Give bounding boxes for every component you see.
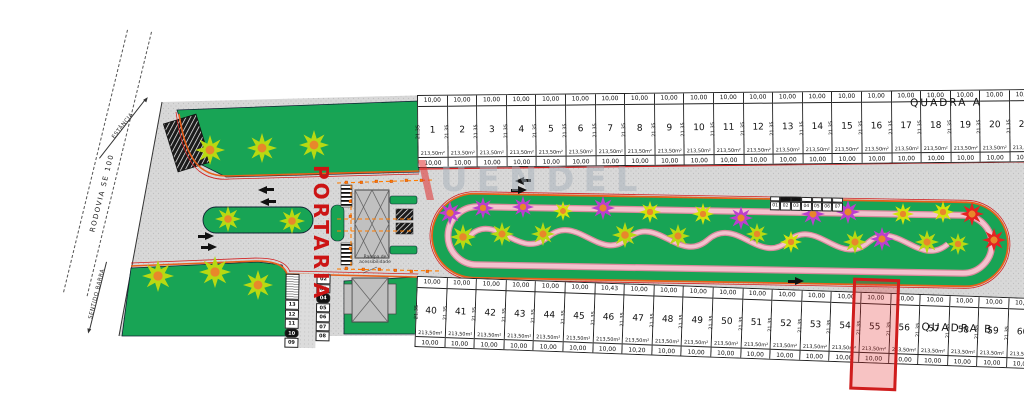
lot-cell-16: 10,001621,35213,50m²10,00	[862, 91, 892, 162]
lot-cell-14: 10,001421,35213,50m²10,00	[803, 92, 833, 163]
lot-cell-9: 10,00921,35213,50m²10,00	[655, 93, 685, 164]
lot-area: 213,50m²	[534, 335, 564, 341]
lot-front-dim: 10,00	[625, 285, 654, 293]
lot-number: 44	[535, 310, 564, 321]
lot-area: 213,50m²	[773, 148, 802, 154]
lot-cell-2: 10,00221,35213,50m²10,00	[448, 95, 478, 166]
lot-back-dim: 10,00	[419, 160, 448, 167]
speed-bump-2	[396, 223, 413, 234]
lot-cell-44: 10,004421,35213,50m²10,00	[534, 281, 566, 351]
lot-number: 11	[714, 122, 743, 132]
mini-strip-lot-13: 13	[285, 300, 299, 310]
lot-front-dim: 10,00	[684, 288, 713, 296]
lot-front-dim: 10,00	[980, 298, 1009, 306]
lot-area: 213,50m²	[623, 338, 653, 344]
lot-front-dim: 10,00	[418, 278, 447, 286]
lot-area: 213,50m²	[803, 147, 832, 153]
lot-front-dim: 10,00	[536, 282, 565, 290]
tree-icon	[553, 201, 573, 221]
lot-cell-8: 10,00821,35213,50m²10,00	[625, 94, 655, 165]
lot-number: 50	[712, 316, 741, 327]
lot-front-dim: 10,00	[566, 95, 595, 102]
lot-front-dim: 10,00	[448, 96, 477, 103]
lot-area: 213,50m²	[921, 146, 950, 152]
lot-cell-40: 10,004021,3521,35213,50m²10,00	[415, 277, 447, 347]
lot-area: 213,50m²	[596, 149, 625, 155]
lot-cell-52: 10,005221,35213,50m²10,00	[770, 290, 802, 360]
lot-cell-48: 10,004821,35213,50m²10,00	[652, 286, 684, 356]
lot-side-dim-left: 21,35	[415, 120, 421, 142]
lot-area: 213,50m²	[445, 331, 475, 337]
lot-number: 1	[418, 125, 447, 135]
lot-cell-3: 10,00321,35213,50m²10,00	[477, 95, 507, 166]
lot-cell-60: 10,006021,35213,50m²10,00	[1007, 298, 1024, 368]
lot-area: 213,50m²	[566, 150, 595, 156]
lot-front-dim: 10,00	[743, 290, 772, 298]
lot-area: 213,50m²	[1010, 145, 1024, 151]
lot-number: 16	[862, 121, 891, 131]
lot-area: 213,50m²	[714, 148, 743, 154]
lot-area: 213,50m²	[652, 339, 682, 345]
lot-front-dim: 10,00	[773, 291, 802, 299]
ramp-note-line2: acessibilidade	[359, 260, 391, 265]
speed-bump-1	[396, 209, 413, 220]
lot-number: 45	[564, 311, 593, 322]
lot-area: 213,50m²	[980, 146, 1009, 152]
lot-back-dim: 10,00	[892, 155, 921, 162]
lot-back-dim: 10,00	[981, 154, 1010, 161]
lot-number: 21	[1010, 119, 1024, 129]
lot-side-dim-left: 21,35	[413, 300, 420, 322]
lot-back-dim: 10,00	[770, 352, 799, 360]
lot-number: 6	[566, 124, 595, 134]
lot-area: 213,50m²	[415, 330, 445, 336]
lot-area: 213,50m²	[770, 343, 800, 349]
lot-cell-51: 10,005121,35213,50m²10,00	[741, 289, 773, 359]
gatehouse-south-wing-right	[388, 284, 396, 314]
lot-area: 213,50m²	[477, 150, 506, 156]
lot-area: 213,50m²	[625, 149, 654, 155]
lot-cell-7: 10,00721,35213,50m²10,00	[596, 94, 626, 165]
lot-back-dim: 10,20	[623, 346, 652, 354]
portaria-label: PORTARIA	[309, 165, 333, 337]
lot-number: 8	[625, 123, 654, 133]
lot-front-dim: 10,00	[684, 94, 713, 101]
lot-back-dim: 10,00	[1007, 360, 1024, 368]
lot-front-dim: 10,00	[744, 94, 773, 101]
lot-area: 213,50m²	[537, 150, 566, 156]
lot-number: 20	[981, 120, 1010, 130]
lot-back-dim: 10,00	[774, 156, 803, 163]
lot-number: 2	[448, 125, 477, 135]
lot-area: 213,50m²	[951, 146, 980, 152]
tree-icon	[438, 201, 462, 225]
median-strip-lot-07: 07	[832, 203, 843, 212]
lot-back-dim: 10,00	[803, 156, 832, 163]
lot-number: 40	[417, 305, 446, 316]
lot-front-dim: 10,00	[832, 93, 861, 100]
lot-area: 213,50m²	[832, 147, 861, 153]
median-strip-lot-04: 04	[801, 202, 812, 211]
lot-area: 213,50m²	[685, 148, 714, 154]
lot-back-dim: 10,00	[682, 349, 711, 357]
lot-cell-47: 10,004721,35213,50m²10,20	[623, 284, 655, 354]
lot-area: 213,50m²	[504, 333, 534, 339]
lot-cell-53: 10,005321,35213,50m²10,00	[800, 291, 832, 361]
lot-cell-42: 10,004221,35213,50m²10,00	[475, 279, 507, 349]
lot-back-dim: 10,00	[567, 158, 596, 165]
lot-back-dim: 10,00	[833, 156, 862, 163]
mini-strip-lot-10: 10	[285, 328, 299, 338]
lane-arrow-mid-west	[515, 177, 524, 185]
ramp-note: Rampa de acessibilidade	[352, 255, 398, 265]
lot-cell-45: 10,004521,35213,50m²10,00	[563, 282, 595, 352]
lot-cell-5: 10,00521,35213,50m²10,00	[536, 95, 566, 166]
lot-area: 213,50m²	[593, 337, 623, 343]
lot-number: 10	[685, 122, 714, 132]
lot-cell-10: 10,001021,35213,50m²10,00	[684, 93, 714, 164]
lot-front-dim: 10,00	[536, 96, 565, 103]
lot-back-dim: 10,00	[478, 159, 507, 166]
lane-arrow-east-2	[208, 243, 217, 251]
lot-number: 15	[833, 121, 862, 131]
lot-area: 213,50m²	[918, 348, 948, 354]
lot-front-dim: 10,00	[980, 91, 1009, 98]
lot-cell-43: 10,004321,35213,50m²10,00	[504, 280, 536, 350]
quadra-b-label: QUADRA B	[921, 321, 993, 336]
lot-back-dim: 10,00	[448, 159, 477, 166]
lot-front-dim: 10,00	[596, 95, 625, 102]
gatehouse-south-wing-left	[344, 284, 352, 314]
lot-back-dim: 10,00	[534, 343, 563, 351]
lot-area: 213,50m²	[563, 336, 593, 342]
lot-front-dim: 10,00	[506, 281, 535, 289]
lot-back-dim: 10,00	[685, 157, 714, 164]
lot-front-dim: 10,00	[507, 96, 536, 103]
lot-front-dim: 10,00	[477, 96, 506, 103]
lot-back-dim: 10,00	[537, 159, 566, 166]
quadra-a-row: QUADRA A 10,00121,3521,35213,50m²10,0010…	[417, 89, 1024, 168]
median-strip-lot-06: 06	[822, 202, 833, 211]
median-lot-strip: 01020304050607	[770, 196, 843, 212]
lot-area: 213,50m²	[741, 342, 771, 348]
lot-cell-1: 10,00121,3521,35213,50m²10,00	[418, 96, 448, 167]
site-plan-canvas: RODOVIA SE 100 ESTÂNCIA SENTIDO BARRA PO…	[0, 0, 1024, 409]
lot-back-dim: 10,00	[507, 159, 536, 166]
lot-front-dim: 10,00	[950, 297, 979, 305]
lot-back-dim: 10,00	[415, 339, 444, 347]
lot-area: 213,50m²	[1007, 351, 1024, 357]
tree-icon	[490, 222, 514, 246]
lot-cell-13: 10,001321,35213,50m²10,00	[773, 92, 803, 163]
lane-arrow-west-1	[258, 186, 267, 194]
lot-front-dim: 10,00	[1009, 299, 1024, 307]
lot-cell-11: 10,001121,35213,50m²10,00	[714, 93, 744, 164]
tree-icon	[195, 135, 225, 165]
median-strip-lot-03: 03	[791, 202, 802, 211]
lot-cell-4: 10,00421,35213,50m²10,00	[507, 95, 537, 166]
lot-area: 213,50m²	[892, 146, 921, 152]
lot-front-dim: 10,00	[655, 94, 684, 101]
lot-area: 213,50m²	[948, 349, 978, 355]
lot-front-dim: 10,00	[714, 94, 743, 101]
lot-back-dim: 10,00	[1010, 154, 1024, 161]
lot-number: 52	[771, 318, 800, 329]
lot-number: 5	[537, 124, 566, 134]
lot-back-dim: 10,00	[504, 342, 533, 350]
lot-number: 60	[1008, 326, 1024, 337]
lot-number: 49	[683, 315, 712, 326]
crosswalk-south	[341, 243, 352, 265]
lot-back-dim: 10,00	[596, 158, 625, 165]
lot-number: 42	[476, 307, 505, 318]
lot-cell-12: 10,001221,35213,50m²10,00	[744, 93, 774, 164]
lot-front-dim: 10,00	[477, 280, 506, 288]
tree-icon	[247, 133, 277, 163]
gate-island-se	[390, 246, 417, 254]
lot-area: 213,50m²	[655, 149, 684, 155]
lot-cell-49: 10,004921,35213,50m²10,00	[682, 287, 714, 357]
lot-front-dim: 10,00	[625, 95, 654, 102]
lot-back-dim: 10,00	[475, 341, 504, 349]
gate-island-ne	[390, 196, 417, 204]
lane-arrow-mid-east	[518, 186, 527, 194]
lot-cell-6: 10,00621,35213,50m²10,00	[566, 94, 596, 165]
lot-front-dim: 10,00	[418, 97, 447, 104]
lot-back-dim: 10,00	[948, 358, 977, 366]
lot-back-dim: 10,00	[977, 359, 1006, 367]
lot-back-dim: 10,00	[715, 157, 744, 164]
lot-back-dim: 10,00	[918, 357, 947, 365]
lot-back-dim: 10,00	[800, 353, 829, 361]
lot-cell-21: 10,002121,35213,50m²10,00	[1010, 90, 1024, 161]
lot-front-dim: 10,00	[1010, 91, 1024, 98]
lot-front-dim: 10,00	[447, 279, 476, 287]
lot-cell-41: 10,004121,35213,50m²10,00	[445, 278, 477, 348]
lot-front-dim: 10,43	[595, 284, 624, 292]
mini-strip-left-column: 1312111009	[284, 274, 299, 348]
lot-back-dim: 10,00	[741, 351, 770, 359]
crosswalk-north	[341, 185, 352, 207]
lot-number: 17	[892, 120, 921, 130]
lot-number: 7	[596, 123, 625, 133]
lot-area: 213,50m²	[507, 150, 536, 156]
lot-cell-50: 10,005021,35213,50m²10,00	[711, 288, 743, 358]
lot-front-dim: 10,00	[566, 283, 595, 291]
lot-front-dim: 10,00	[802, 292, 831, 300]
median-strip-lot-01: 01	[770, 201, 781, 210]
lot-back-dim: 10,00	[711, 350, 740, 358]
lot-back-dim: 10,00	[626, 158, 655, 165]
lot-area: 213,50m²	[862, 147, 891, 153]
lot-number: 3	[477, 124, 506, 134]
lot-front-dim: 10,00	[803, 93, 832, 100]
lot-front-dim: 10,00	[773, 93, 802, 100]
lane-arrow-right-east	[795, 277, 804, 285]
median-strip-lot-02: 02	[780, 201, 791, 210]
tree-icon	[243, 270, 273, 300]
lot-number: 12	[744, 122, 773, 132]
lot-back-dim: 10,00	[652, 347, 681, 355]
lot-area: 213,50m²	[800, 344, 830, 350]
mini-strip-lot-09: 09	[284, 338, 298, 348]
lot-area: 213,50m²	[418, 151, 447, 157]
lot-front-dim: 10,00	[920, 296, 949, 304]
lot-number: 18	[921, 120, 950, 130]
lot-area: 213,50m²	[682, 340, 712, 346]
mini-strip-lot-11: 11	[285, 319, 299, 329]
lot-area: 213,50m²	[711, 341, 741, 347]
lot-area: 213,50m²	[977, 350, 1007, 356]
lane-arrow-east-1	[205, 232, 214, 240]
median-strip-numbers: 01020304050607	[770, 201, 843, 212]
green-area-north	[177, 101, 419, 177]
lot-area: 213,50m²	[475, 332, 505, 338]
lot-area: 213,50m²	[744, 148, 773, 154]
lot-back-dim: 10,00	[593, 345, 622, 353]
tree-icon	[299, 130, 329, 160]
lot-front-dim: 10,00	[713, 289, 742, 297]
highlighted-lot-overlay	[849, 278, 900, 392]
lot-cell-20: 10,002021,35213,50m²10,00	[980, 90, 1010, 161]
lot-back-dim: 10,00	[563, 344, 592, 352]
lot-back-dim: 10,00	[863, 155, 892, 162]
lot-area: 213,50m²	[448, 151, 477, 157]
lot-number: 47	[624, 313, 653, 324]
mini-strip-header	[285, 274, 299, 300]
lot-back-dim: 10,00	[951, 155, 980, 162]
lot-back-dim: 10,00	[445, 340, 474, 348]
lot-back-dim: 10,00	[744, 157, 773, 164]
lot-cell-15: 10,001521,35213,50m²10,00	[832, 92, 862, 163]
lane-arrow-west-2	[260, 198, 269, 206]
mini-strip-lot-12: 12	[285, 309, 299, 319]
quadra-a-label: QUADRA A	[910, 97, 982, 110]
lot-back-dim: 10,00	[655, 157, 684, 164]
lot-cell-46: 10,434621,35213,50m²10,00	[593, 283, 625, 353]
lot-back-dim: 10,00	[922, 155, 951, 162]
median-strip-lot-05: 05	[811, 202, 822, 211]
lot-number: 13	[773, 122, 802, 132]
lot-front-dim: 10,00	[654, 287, 683, 295]
lot-front-dim: 10,00	[862, 92, 891, 99]
